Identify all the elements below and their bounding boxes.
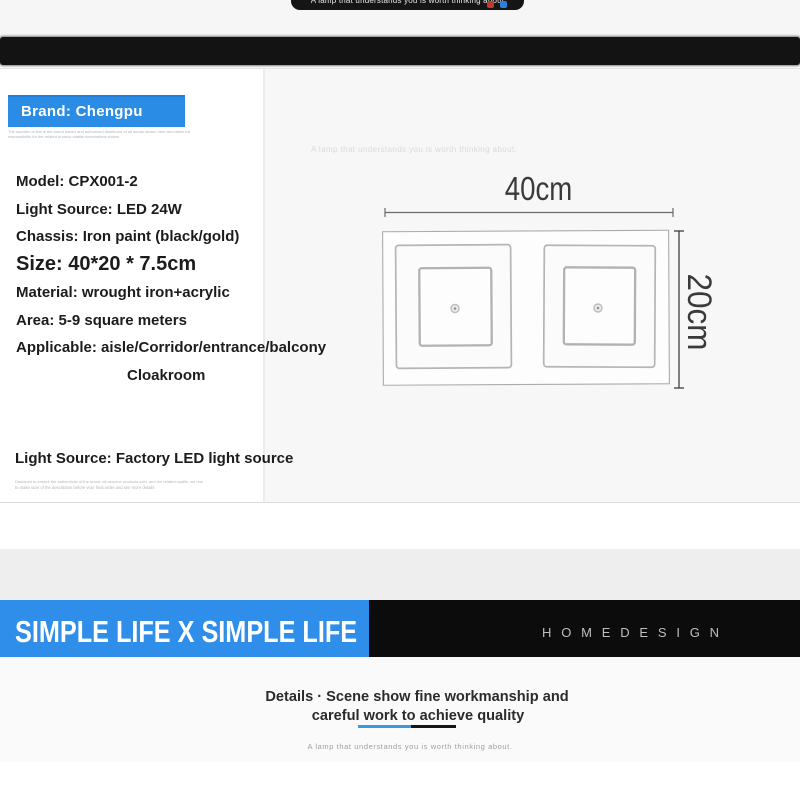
svg-text:20cm: 20cm — [680, 274, 718, 351]
svg-text:40cm: 40cm — [505, 170, 573, 207]
